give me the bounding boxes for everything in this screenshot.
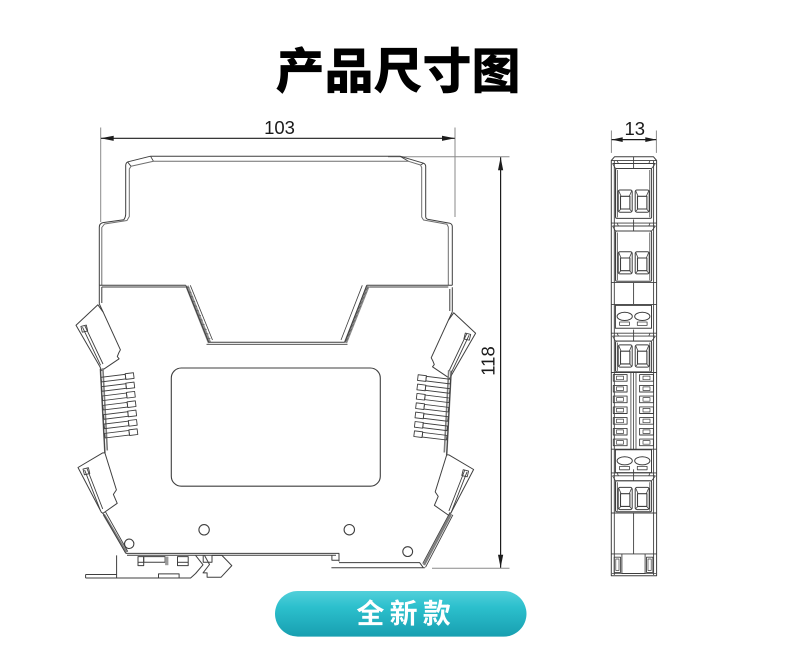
svg-text:13: 13 bbox=[625, 118, 646, 139]
svg-text:103: 103 bbox=[264, 117, 295, 138]
svg-text:118: 118 bbox=[478, 346, 499, 376]
